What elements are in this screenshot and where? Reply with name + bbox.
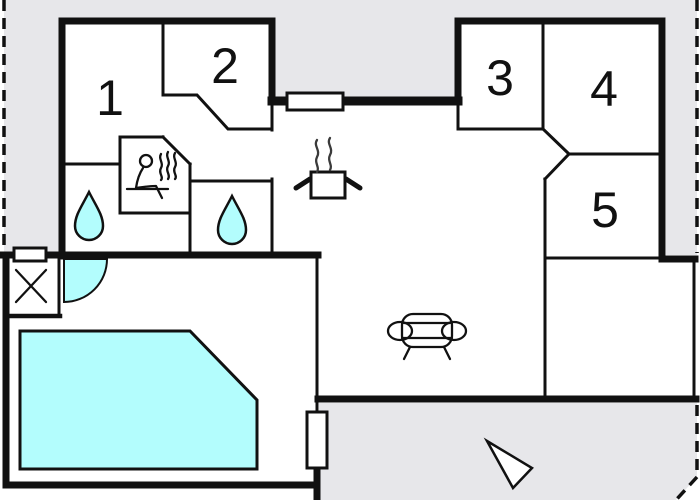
terrace-ground bbox=[319, 403, 697, 500]
stove-pot bbox=[311, 172, 345, 198]
interior-lower-right-room bbox=[660, 258, 698, 400]
door-marker-terrace bbox=[307, 412, 327, 468]
room-2-label: 2 bbox=[211, 38, 239, 94]
floor-plan-svg: 1 2 3 4 5 bbox=[0, 0, 700, 500]
window-marker-utility bbox=[14, 248, 46, 261]
floor-plan-page: 1 2 3 4 5 bbox=[0, 0, 700, 500]
room-3-label: 3 bbox=[486, 50, 514, 106]
room-1-label: 1 bbox=[96, 70, 124, 126]
window-marker-top bbox=[287, 93, 343, 110]
room-4-label: 4 bbox=[590, 61, 618, 117]
room-5-label: 5 bbox=[591, 182, 619, 238]
interior-hall-living bbox=[272, 100, 666, 400]
